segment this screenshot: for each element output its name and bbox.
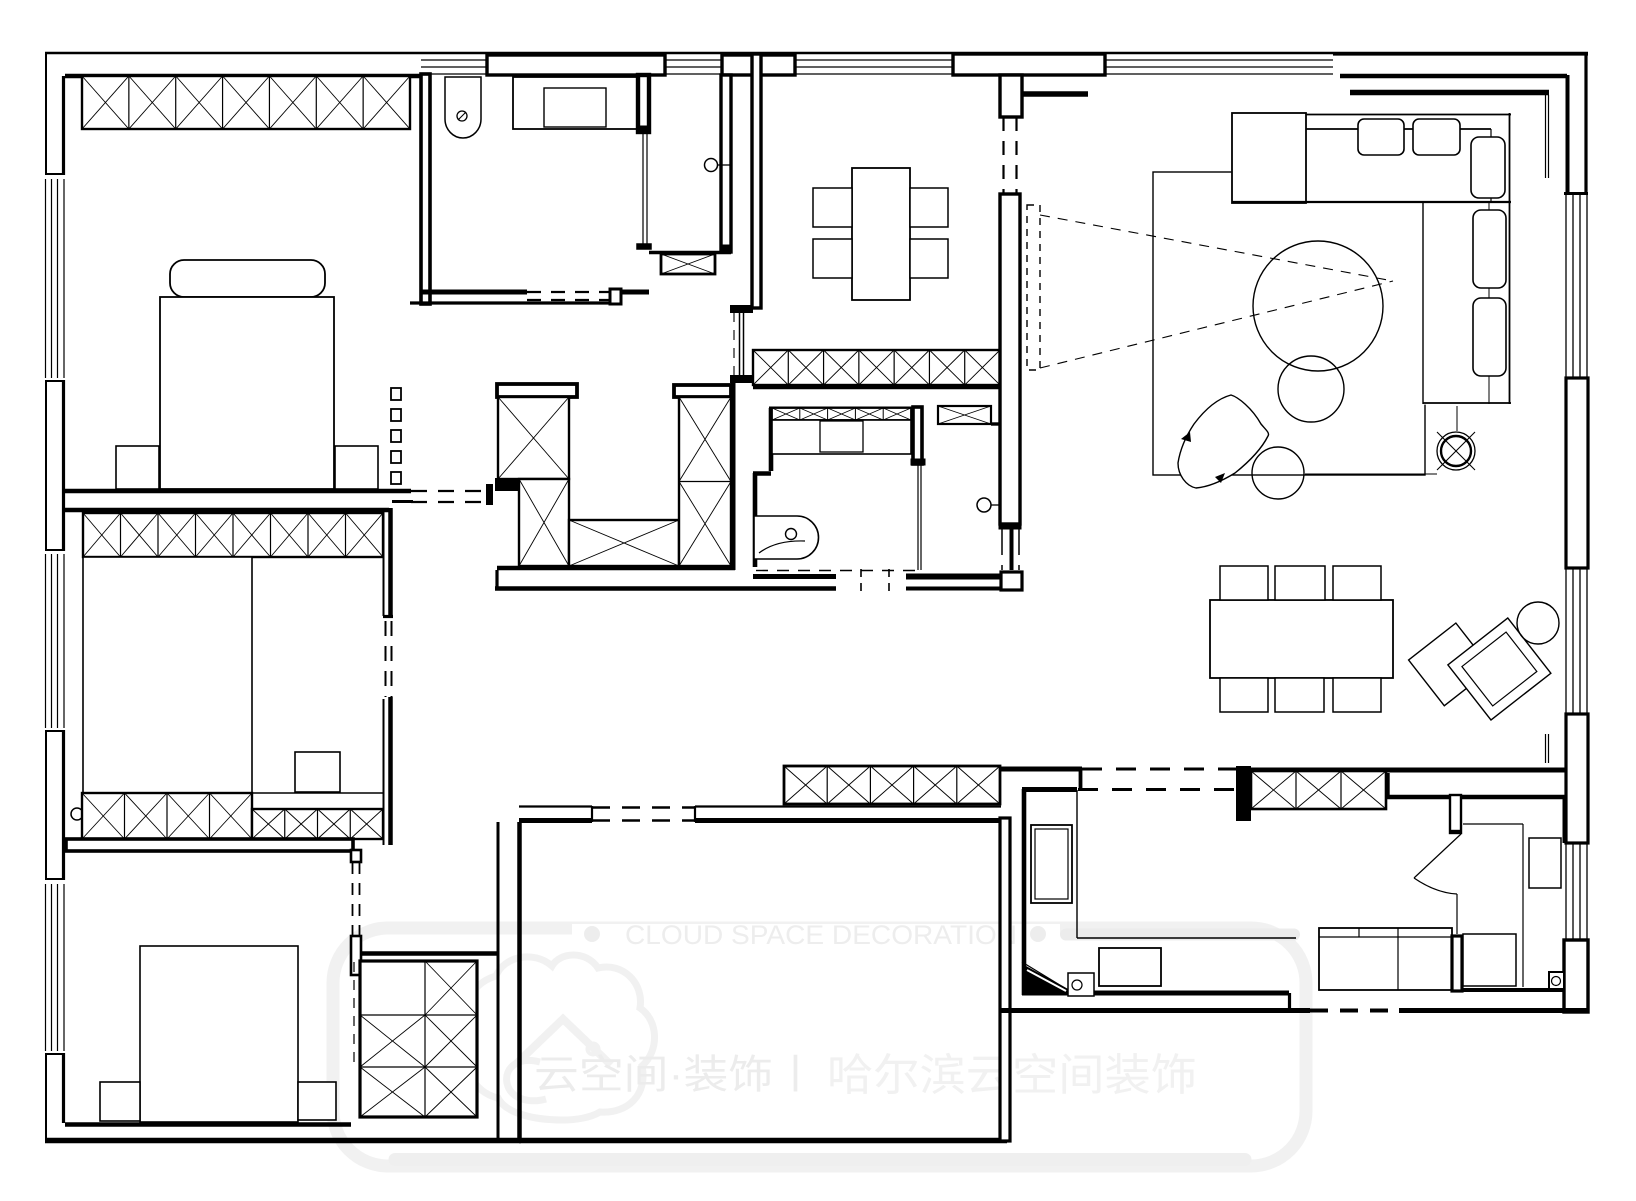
svg-text:哈尔滨云空间装饰: 哈尔滨云空间装饰 <box>827 1051 1197 1100</box>
svg-text:CLOUD SPACE DECORATION: CLOUD SPACE DECORATION <box>625 920 1017 950</box>
svg-text:云空间·装饰丨: 云空间·装饰丨 <box>534 1053 818 1097</box>
